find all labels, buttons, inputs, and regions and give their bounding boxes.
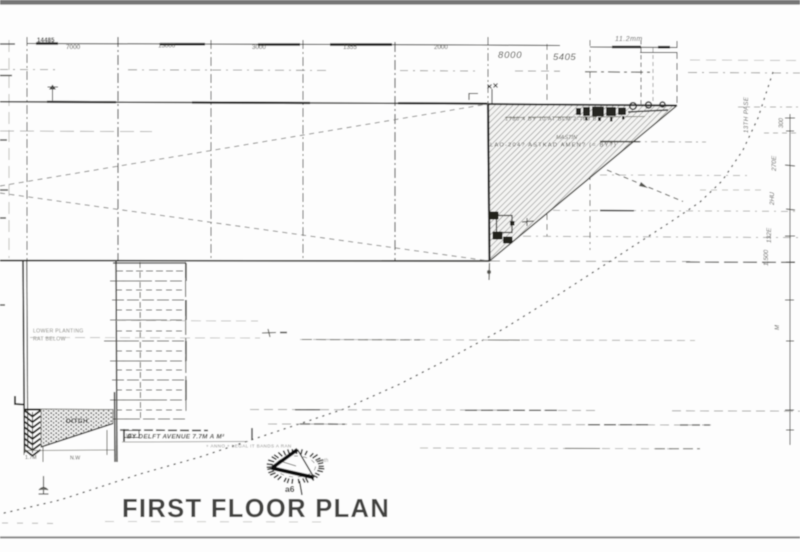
svg-text:1.7M: 1.7M bbox=[25, 455, 37, 461]
svg-text:DITCH: DITCH bbox=[66, 418, 88, 425]
svg-text:1355: 1355 bbox=[343, 44, 357, 51]
svg-text:270E: 270E bbox=[771, 155, 778, 172]
svg-text:11.2mm: 11.2mm bbox=[615, 36, 643, 43]
svg-text:8000: 8000 bbox=[498, 50, 522, 61]
svg-text:M: M bbox=[775, 325, 781, 330]
svg-text:5405: 5405 bbox=[553, 52, 576, 63]
svg-text:132E: 132E bbox=[766, 227, 773, 243]
svg-text:3000: 3000 bbox=[252, 44, 266, 51]
svg-text:13000: 13000 bbox=[158, 43, 176, 50]
svg-text:FIRST FLOOR PLAN: FIRST FLOOR PLAN bbox=[122, 495, 390, 523]
svg-text:MASTIN: MASTIN bbox=[556, 135, 578, 141]
svg-text:1,500: 1,500 bbox=[763, 249, 770, 266]
svg-text:13TH PASE: 13TH PASE bbox=[744, 96, 750, 133]
svg-text:BY DELFT AVENUE 7.7M A M²: BY DELFT AVENUE 7.7M A M² bbox=[127, 434, 225, 441]
svg-text:a6: a6 bbox=[285, 484, 295, 494]
svg-text:7000: 7000 bbox=[66, 44, 81, 51]
svg-text:N.W: N.W bbox=[70, 456, 80, 462]
svg-text:+ ANNO + LEGAL IT BANDS A RAN: + ANNO + LEGAL IT BANDS A RAN bbox=[206, 444, 292, 449]
svg-text:14485: 14485 bbox=[37, 38, 55, 44]
svg-text:300: 300 bbox=[779, 117, 785, 128]
svg-text:2HU: 2HU bbox=[769, 192, 776, 206]
svg-text:LOWER PLANTING: LOWER PLANTING bbox=[33, 329, 84, 335]
svg-text:LAO-204? ASTKAD AMEN? (= BY?): LAO-204? ASTKAD AMEN? (= BY?) bbox=[490, 143, 617, 149]
svg-text:2000: 2000 bbox=[434, 44, 448, 51]
svg-text:south: south bbox=[316, 458, 328, 464]
